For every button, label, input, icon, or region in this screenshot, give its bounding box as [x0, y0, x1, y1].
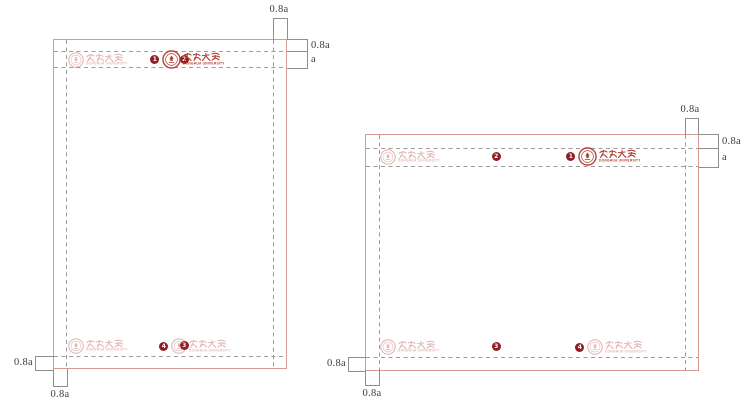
measure-left-margin-bracket [365, 370, 380, 386]
donghua-seal-icon [587, 339, 603, 355]
donghua-calligraphy-wordmark [86, 53, 123, 63]
logo-unit-top-right: 1 DONGHUA UNIVERSITY [566, 147, 690, 165]
donghua-seal-icon [380, 339, 396, 355]
donghua-logo-watermark: DONGHUA UNIVERSITY [587, 339, 696, 355]
donghua-seal-icon [380, 149, 396, 165]
logo-wordmark: DONGHUA UNIVERSITY [183, 52, 274, 66]
dim-label-left-margin: 0.8a [351, 387, 393, 400]
marker-badge-2: 2 [492, 152, 501, 161]
measure-right-margin-tab [273, 18, 288, 40]
donghua-calligraphy-wordmark [86, 339, 123, 349]
bottom-margin-guide [366, 357, 698, 358]
donghua-logo-primary: DONGHUA UNIVERSITY [162, 50, 274, 69]
logo-subtitle: DONGHUA UNIVERSITY [183, 63, 225, 65]
logo-subtitle: DONGHUA UNIVERSITY [605, 351, 647, 353]
logo-subtitle: DONGHUA UNIVERSITY [86, 349, 128, 351]
measure-band-bracket [287, 51, 308, 69]
donghua-seal-icon [578, 147, 597, 166]
measure-top-margin-bracket [699, 134, 719, 149]
dim-label-right-margin: 0.8a [669, 103, 711, 116]
dim-label-bottom-margin: 0.8a [317, 356, 346, 370]
logo-wordmark: DONGHUA UNIVERSITY [189, 339, 280, 353]
marker-badge-4: 4 [575, 343, 584, 352]
donghua-calligraphy-wordmark [398, 150, 435, 160]
logo-unit-top-left: DONGHUA UNIVERSITY 2 [380, 148, 501, 165]
dim-label-top-margin: 0.8a [311, 38, 345, 52]
measure-right-margin-tab [685, 118, 699, 135]
logo-unit-top-right: 1 DONGHUA UNIVERSITY [150, 50, 274, 68]
logo-subtitle: DONGHUA UNIVERSITY [189, 350, 231, 352]
donghua-seal-icon [162, 50, 181, 69]
donghua-seal-icon [68, 52, 84, 68]
donghua-seal-icon [171, 338, 187, 354]
donghua-seal-icon [68, 338, 84, 354]
logo-wordmark: DONGHUA UNIVERSITY [398, 340, 489, 354]
logo-subtitle: DONGHUA UNIVERSITY [599, 160, 641, 162]
donghua-logo-watermark: DONGHUA UNIVERSITY [380, 149, 489, 165]
donghua-calligraphy-wordmark [183, 52, 220, 62]
marker-badge-3: 3 [492, 342, 501, 351]
right-margin-guide [273, 40, 274, 368]
marker-badge-1: 1 [150, 55, 159, 64]
right-margin-guide [685, 135, 686, 370]
landscape-page-frame: DONGHUA UNIVERSITY 2 1 DONGHUA UNIVERSIT… [365, 134, 699, 371]
dim-label-band-height: a [311, 52, 331, 67]
measure-band-bracket [699, 148, 719, 168]
donghua-calligraphy-wordmark [189, 339, 226, 349]
donghua-logo-watermark: DONGHUA UNIVERSITY [171, 338, 280, 354]
logo-subtitle: DONGHUA UNIVERSITY [86, 63, 128, 65]
logo-unit-bottom-left: DONGHUA UNIVERSITY 3 [380, 338, 501, 355]
dim-label-left-margin: 0.8a [39, 388, 81, 401]
donghua-calligraphy-wordmark [398, 340, 435, 350]
donghua-logo-watermark: DONGHUA UNIVERSITY [380, 339, 489, 355]
logo-wordmark: DONGHUA UNIVERSITY [605, 340, 696, 354]
measure-bottom-margin-bracket [35, 356, 54, 371]
measure-left-margin-bracket [53, 369, 68, 387]
logo-subtitle: DONGHUA UNIVERSITY [398, 350, 440, 352]
left-margin-guide [66, 40, 67, 368]
dim-label-top-margin: 0.8a [722, 134, 750, 148]
marker-badge-4: 4 [159, 342, 168, 351]
donghua-calligraphy-wordmark [599, 149, 636, 159]
layout-spec-canvas: DONGHUA UNIVERSITY 2 1 DONGHUA UNIVERSIT… [0, 0, 750, 408]
logo-unit-bottom-right: 4 DONGHUA UNIVERSITY [575, 338, 696, 356]
left-margin-guide [379, 135, 380, 370]
logo-unit-bottom-right: 4 DONGHUA UNIVERSITY [159, 337, 280, 355]
dim-label-band-height: a [722, 149, 742, 166]
dim-label-right-margin: 0.8a [258, 3, 300, 16]
measure-bottom-margin-bracket [348, 357, 366, 372]
logo-wordmark: DONGHUA UNIVERSITY [599, 149, 690, 163]
bottom-margin-guide [54, 356, 286, 357]
donghua-calligraphy-wordmark [605, 340, 642, 350]
marker-badge-1: 1 [566, 152, 575, 161]
header-band-guide [366, 166, 698, 167]
logo-subtitle: DONGHUA UNIVERSITY [398, 160, 440, 162]
donghua-logo-primary: DONGHUA UNIVERSITY [578, 147, 690, 166]
logo-wordmark: DONGHUA UNIVERSITY [398, 150, 489, 164]
portrait-page-frame: DONGHUA UNIVERSITY 2 1 DONGHUA UNIVERSIT… [53, 39, 287, 369]
dim-label-bottom-margin: 0.8a [4, 355, 33, 369]
